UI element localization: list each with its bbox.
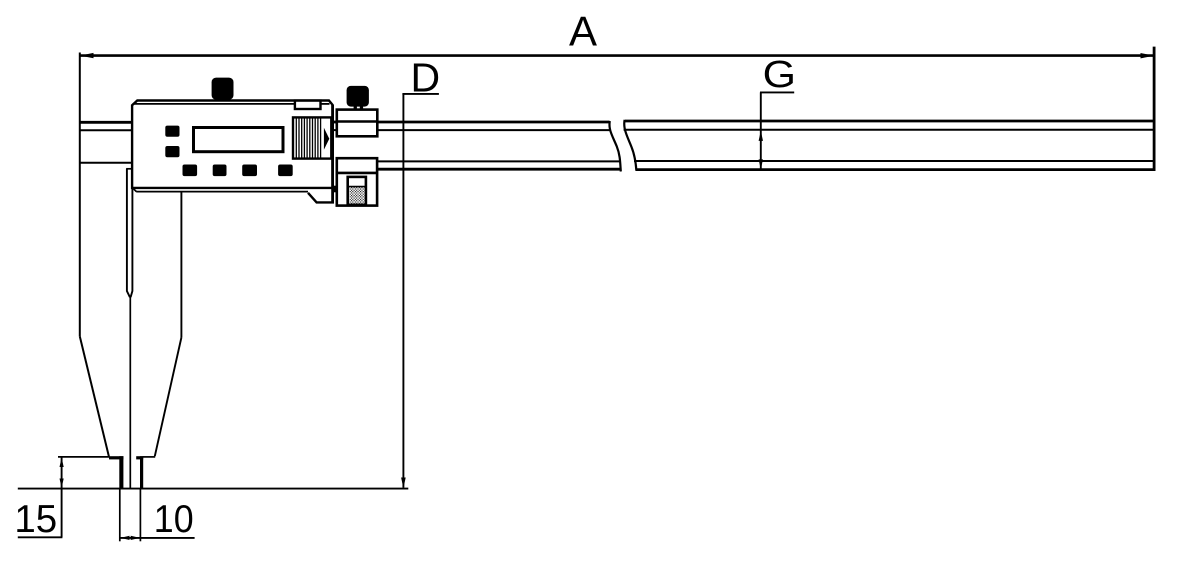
svg-text:G: G [763, 52, 796, 95]
svg-text:15: 15 [14, 498, 57, 541]
svg-text:A: A [569, 8, 597, 55]
svg-text:10: 10 [154, 497, 194, 540]
